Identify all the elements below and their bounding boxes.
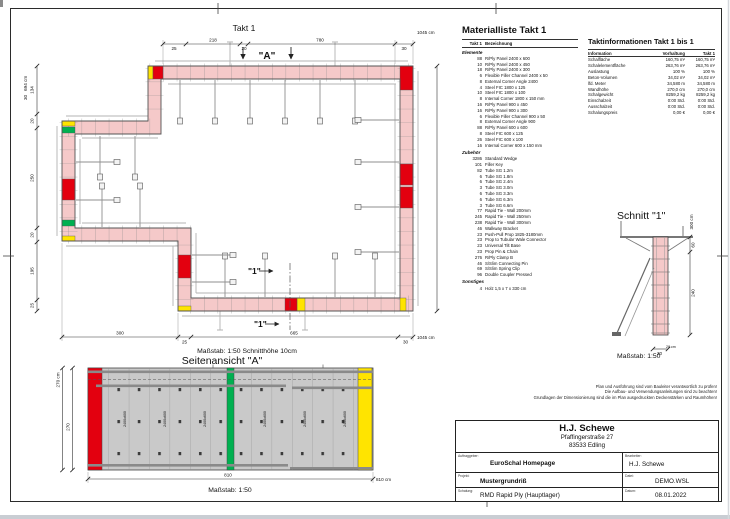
wall-band <box>62 66 413 311</box>
plan-scale-label: Maßstab: 1:50 Schnitthöhe 10cm <box>197 348 297 355</box>
dim-label: 270 cm <box>56 372 61 387</box>
project-label: Projekt: <box>458 474 470 478</box>
dim-label: 780 <box>316 38 324 43</box>
plan-view: Takt 1 <box>23 23 439 355</box>
date-value: 08.01.2022 <box>623 488 718 499</box>
material-row: 96Double Coupler Pressed <box>462 272 578 278</box>
material-list-header: Takt 1 Bezeichnung <box>462 39 578 48</box>
project-cell: Projekt: Mustergrundriß <box>456 473 623 487</box>
svg-text:2400x600: 2400x600 <box>303 411 307 427</box>
material-row: 4Holz 1,5 x 7 x 330 cm <box>462 286 578 292</box>
svg-text:2400x600: 2400x600 <box>163 411 167 427</box>
dim-label: 20 <box>30 232 35 238</box>
dim-label: 195 <box>30 267 35 275</box>
dim-label: 25 <box>171 46 177 51</box>
date-label: Datum: <box>625 489 636 493</box>
dim-label: 30 <box>403 340 409 345</box>
section-scale-label: Maßstab: 1:50 <box>617 353 661 360</box>
section-view: Schnitt "1" 300 cm 60 2 <box>612 210 696 360</box>
dim-label: 25 <box>182 340 188 345</box>
dim-label: 134 <box>30 86 35 94</box>
takt-info: Taktinformationen Takt 1 bis 1 Informati… <box>588 37 715 116</box>
date-cell: Datum: 08.01.2022 <box>623 488 718 501</box>
file-value: DEMO.WSL <box>623 473 718 485</box>
dim-label: 30 <box>401 46 407 51</box>
dim-label: 810 <box>224 473 232 478</box>
elevation-view: Seitenansicht "A" 2400x600 2400x600 2400… <box>56 355 392 494</box>
formwork-label: Schalung: <box>458 489 473 493</box>
dim-total-label: 1045 cm <box>417 30 435 35</box>
dim-label: 300 <box>116 331 124 336</box>
file-cell: Datei: DEMO.WSL <box>623 473 718 487</box>
material-list: Materialliste Takt 1 Takt 1 Bezeichnung … <box>462 25 578 291</box>
material-section-sonstiges: 4Holz 1,5 x 7 x 330 cm <box>462 286 578 292</box>
dim-label: 240 <box>691 289 696 297</box>
plan-props <box>76 80 399 297</box>
section-wall <box>653 237 668 335</box>
section-marker-label-bottom: "1" <box>254 319 267 329</box>
company-street: Pfaffingerstraße 27 <box>456 434 718 442</box>
title-block-row-client: Auftraggeber: EuroSchal Homepage Bearbei… <box>456 453 718 473</box>
material-section-elemente: 88R/Ply Panel 2400 x 60010R/Ply Panel 24… <box>462 56 578 149</box>
dim-label: 60 <box>691 242 696 248</box>
takt-info-rows: Schalfläche 160,75 m² 160,75 m² Schalele… <box>588 57 715 116</box>
plan-wales <box>57 42 418 330</box>
file-label: Datei: <box>625 474 634 478</box>
material-list-col-qty: Takt 1 <box>462 41 482 46</box>
elevation-marker-label: "A" <box>259 51 276 62</box>
corner-mark <box>0 0 3 7</box>
dim-total-label: 810 cm <box>376 477 391 482</box>
dim-label: 250 <box>30 174 35 182</box>
dim-label: 665 <box>290 331 298 336</box>
title-block-row-formwork: Schalung: RMD Rapid Ply (Hauptlager) Dat… <box>456 488 718 501</box>
client-label: Auftraggeber: <box>458 454 479 458</box>
dimension-chain-bottom: 300 25 665 30 1045 cm <box>60 243 435 345</box>
takt-info-col-information: Information <box>588 51 651 56</box>
plan-notes: Plan und Ausführung sind vom Bauleiter v… <box>437 384 717 400</box>
section-title: Schnitt "1" <box>617 210 666 222</box>
elevation-scale-label: Maßstab: 1:50 <box>208 487 252 494</box>
title-block: H.J. Schewe Pfaffingerstraße 27 83533 Ed… <box>455 420 719 502</box>
client-cell: Auftraggeber: EuroSchal Homepage <box>456 453 623 472</box>
svg-text:2400x600: 2400x600 <box>343 411 347 427</box>
plan-title: Takt 1 <box>233 23 256 33</box>
wall-outline <box>62 66 413 311</box>
title-block-company: H.J. Schewe Pfaffingerstraße 27 83533 Ed… <box>456 421 718 453</box>
svg-text:2400x600: 2400x600 <box>123 411 127 427</box>
editor-cell: Bearbeiter: H.J. Schewe <box>623 453 718 472</box>
drawing-sheet: Takt 1 <box>0 0 730 519</box>
dim-total-label: 30694 cm <box>23 76 28 100</box>
company-name: H.J. Schewe <box>456 423 718 434</box>
dimension-chain-right <box>435 64 439 313</box>
dim-total-label: 1045 cm <box>417 335 435 340</box>
dim-label: 218 <box>209 38 217 43</box>
material-section-zubehoer: 3286Standard Wedge101Filler Key82Tube SG… <box>462 156 578 278</box>
formwork-cell: Schalung: RMD Rapid Ply (Hauptlager) <box>456 488 623 501</box>
formwork-value: RMD Rapid Ply (Hauptlager) <box>456 488 622 499</box>
svg-text:2400x600: 2400x600 <box>203 411 207 427</box>
material-list-col-name: Bezeichnung <box>485 41 512 46</box>
paper-edge-shadow <box>0 515 730 519</box>
takt-info-col-takt: Takt 1 <box>685 51 715 56</box>
dim-label: 25 <box>30 303 35 309</box>
takt-info-row: Schalungspreis 0,00 € 0,00 € <box>588 110 715 116</box>
elevation-view-marker: "A" <box>243 47 291 62</box>
editor-label: Bearbeiter: <box>625 454 642 458</box>
project-value: Mustergrundriß <box>456 473 622 485</box>
dim-label: 300 cm <box>689 214 694 229</box>
material-row: 16Internal Corner 600 x 150 mm <box>462 143 578 149</box>
dim-label: 20 <box>241 46 247 51</box>
material-list-title: Materialliste Takt 1 <box>462 25 578 36</box>
dim-label: 28 cm <box>666 345 676 349</box>
dim-label: 20 <box>30 118 35 124</box>
wall-accents <box>62 66 413 311</box>
svg-text:2400x600: 2400x600 <box>263 411 267 427</box>
note-line: Grundlagen der Dimensionierung sind die … <box>437 395 717 400</box>
title-block-row-project: Projekt: Mustergrundriß Datei: DEMO.WSL <box>456 473 718 488</box>
dim-label: 270 <box>66 423 71 431</box>
dimension-chain-top: 25 218 20 780 30 1045 cm <box>161 30 435 64</box>
takt-info-col-vorhaltung: Vorhaltung <box>651 51 685 56</box>
section-marker-label-top: "1" <box>248 266 261 276</box>
section-prop <box>612 258 654 336</box>
takt-info-header: Information Vorhaltung Takt 1 <box>588 49 715 57</box>
dimension-chain-left: 134 20 250 20 195 25 30694 cm <box>23 64 39 313</box>
elevation-title: Seitenansicht "A" <box>182 355 263 367</box>
takt-info-title: Taktinformationen Takt 1 bis 1 <box>588 37 715 46</box>
company-city: 83533 Edling <box>456 442 718 450</box>
client-value: EuroSchal Homepage <box>456 453 622 467</box>
panel-joints <box>60 64 416 314</box>
